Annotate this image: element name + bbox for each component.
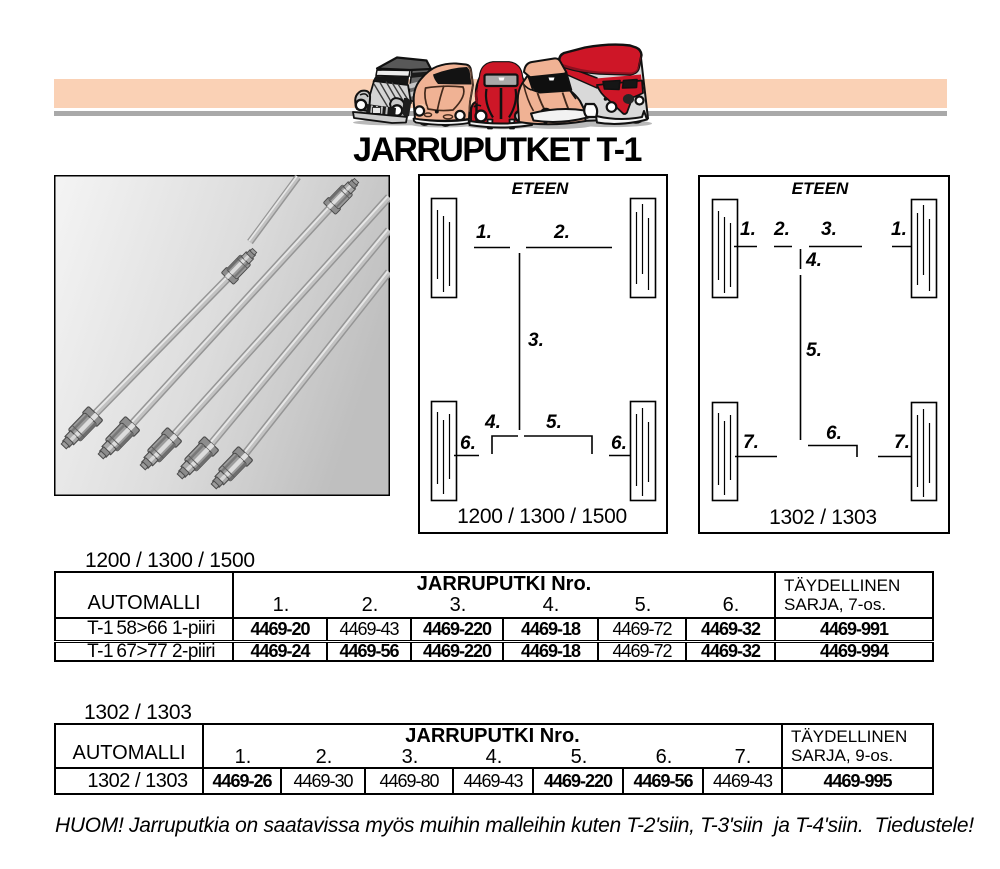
svg-text:3.: 3. xyxy=(528,330,544,351)
svg-text:1.: 1. xyxy=(476,222,492,243)
svg-text:ETEEN: ETEEN xyxy=(792,179,849,198)
svg-text:6.: 6. xyxy=(611,433,627,454)
svg-text:2.: 2. xyxy=(553,222,570,243)
svg-text:3.: 3. xyxy=(821,219,837,240)
svg-text:2.: 2. xyxy=(773,219,790,240)
svg-text:7.: 7. xyxy=(743,432,759,453)
svg-text:4.: 4. xyxy=(484,412,501,433)
svg-text:6.: 6. xyxy=(460,433,476,454)
svg-text:6.: 6. xyxy=(826,423,842,444)
svg-text:1.: 1. xyxy=(891,219,907,240)
svg-text:1302 / 1303: 1302 / 1303 xyxy=(769,506,877,529)
svg-text:7.: 7. xyxy=(894,432,910,453)
svg-text:ETEEN: ETEEN xyxy=(512,179,569,198)
svg-text:5.: 5. xyxy=(806,340,822,361)
svg-text:4.: 4. xyxy=(805,250,822,271)
svg-text:5.: 5. xyxy=(546,412,562,433)
svg-text:1200 / 1300 / 1500: 1200 / 1300 / 1500 xyxy=(457,505,627,528)
svg-text:1.: 1. xyxy=(740,219,756,240)
